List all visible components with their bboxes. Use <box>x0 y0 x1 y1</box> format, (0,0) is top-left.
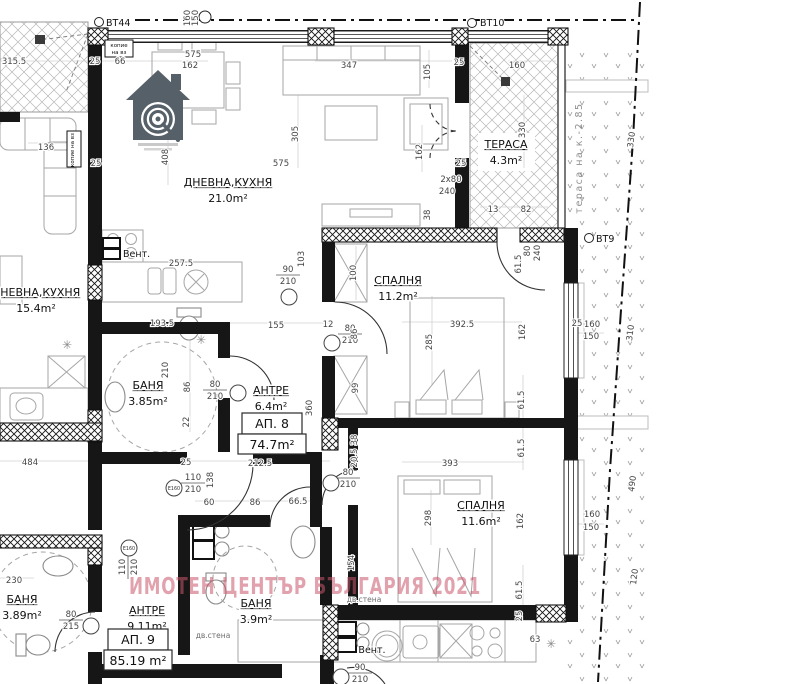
dimension-label: 25 <box>515 611 525 622</box>
dimension-label: 99 <box>351 383 361 394</box>
door-height: 210 <box>185 485 201 495</box>
room-label-hall-6-4: АНТРЕ6.4m² <box>253 384 289 413</box>
dimension-label: 61.5 <box>517 391 527 410</box>
dimension-label: 150 <box>583 523 599 533</box>
dimension-label: 155 <box>268 321 284 331</box>
dimension-label: 240 <box>439 187 455 197</box>
dimension-label: 310 <box>625 324 637 341</box>
door-height: 210 <box>340 480 356 490</box>
door-width: 90 <box>355 663 366 673</box>
door-width: 90 <box>283 265 294 275</box>
dimension-label: 20.5 <box>350 449 360 468</box>
door-ref-code: E160 <box>168 486 180 492</box>
apartment-number: АП. 8 <box>255 416 289 431</box>
door-width: 80 <box>343 468 354 478</box>
dimension-label: 162 <box>182 61 198 71</box>
dimension-label: 66.5 <box>289 497 308 507</box>
apartment-area: 85.19 m² <box>110 653 167 668</box>
dimension-label: 63 <box>530 635 541 645</box>
dimension-label: 160 <box>509 61 525 71</box>
armchair <box>404 98 448 150</box>
door-ref-circle <box>324 335 340 351</box>
lamp-icon: ✳ <box>546 637 556 651</box>
dimension-label: 240 <box>533 245 543 261</box>
room-labels: ДНЕВНА,КУХНЯ21.0m²ТЕРАСА4.3m²ДНЕВНА,КУХН… <box>0 138 528 633</box>
dimension-label: 408 <box>161 149 171 165</box>
room-label-bedroom-11-2: СПАЛНЯ11.2m² <box>374 274 422 303</box>
dimension-label: 490 <box>627 475 639 492</box>
annotation-label: тераса на к.-2.85 <box>574 102 585 213</box>
bt44-marker <box>95 18 104 27</box>
room-name: БАНЯ <box>7 593 38 606</box>
dimension-label: 150 <box>583 332 599 342</box>
room-label-bath-3-89: БАНЯ3.89m² <box>2 593 42 622</box>
room-area: 11.6m² <box>461 515 501 528</box>
dimension-label: 575 <box>185 50 201 60</box>
dimension-label: 80 <box>523 246 533 257</box>
dimension-label: 25 <box>572 319 583 329</box>
door-height: 210 <box>130 559 140 575</box>
door-ref-circle <box>83 618 99 634</box>
door-width: 80 <box>210 380 221 390</box>
apartment-area: 74.7m² <box>249 437 294 452</box>
room-name: БАНЯ <box>133 379 164 392</box>
terrace-parapet <box>558 30 565 228</box>
room-name: АНТРЕ <box>253 384 289 397</box>
room-area: 3.9m² <box>240 613 273 626</box>
room-name: ТЕРАСА <box>483 138 528 151</box>
dimension-label: 160 <box>584 320 600 330</box>
dimension-label: 305 <box>291 126 301 142</box>
apartment-number: АП. 9 <box>121 632 155 647</box>
furniture <box>0 36 536 662</box>
dimension-label: 484 <box>22 458 38 468</box>
dimension-label: 61.5 <box>517 439 527 458</box>
door-ref-circle <box>323 475 339 491</box>
annotation-label: копие на вз <box>70 133 76 167</box>
dimension-label: 66 <box>115 57 126 67</box>
room-area: 3.89m² <box>2 609 42 622</box>
vent-shaft <box>103 238 120 248</box>
dimension-label: 25 <box>90 57 101 67</box>
dimension-label: 330 <box>626 131 638 148</box>
dimension-label: 285 <box>425 334 435 350</box>
room-area: 21.0m² <box>208 192 248 205</box>
bt9-marker <box>585 234 594 243</box>
room-label-living-15-4: ДНЕВНА,КУХНЯ15.4m² <box>0 286 80 315</box>
dimension-label: 25 <box>454 58 465 68</box>
room-name: СПАЛНЯ <box>374 274 422 287</box>
door-ref-circle <box>230 385 246 401</box>
door-width: 110 <box>118 559 128 575</box>
dimension-label: 257.5 <box>169 259 193 269</box>
dimension-label: 392.5 <box>450 320 474 330</box>
door-height: 210 <box>207 392 223 402</box>
agency-logo <box>126 70 190 151</box>
annotation-label: ВТ10 <box>480 18 504 29</box>
door-height: 215 <box>63 622 79 632</box>
ground-ledge <box>575 416 648 429</box>
dimension-label: 105 <box>423 64 433 80</box>
dimension-label: 575 <box>273 159 289 169</box>
dimension-label: 136 <box>38 143 54 153</box>
door-size-marker: 80210 <box>336 468 360 490</box>
door-size-marker: 90210 <box>348 663 372 684</box>
room-label-bedroom-11-6: СПАЛНЯ11.6m² <box>457 499 505 528</box>
dimension-label: 25 <box>91 159 102 169</box>
bath-sink <box>43 556 73 576</box>
dimension-label: 162 <box>516 513 526 529</box>
door-width: 110 <box>185 473 201 483</box>
dimension-label: 298 <box>424 510 434 526</box>
lamp-icon: ✳ <box>196 333 206 347</box>
dimension-label: 193.5 <box>150 319 174 329</box>
door-ref-circle <box>333 669 349 684</box>
bt10-marker <box>468 19 477 28</box>
dimension-label: 162 <box>415 144 425 160</box>
annotation-label: Вент. <box>358 645 385 656</box>
door-size-marker: 110210 <box>181 473 205 495</box>
dimension-label: 120 <box>629 568 641 585</box>
dimension-label: 347 <box>341 61 357 71</box>
dimension-label: 393 <box>442 459 458 469</box>
annotation-label: копие <box>110 43 128 49</box>
dimension-label: 154 <box>347 555 357 571</box>
dimension-label: 13 <box>488 205 499 215</box>
dimension-label: 25 <box>456 159 467 169</box>
dimension-label: 162 <box>518 324 528 340</box>
room-name: ДНЕВНА,КУХНЯ <box>184 176 273 189</box>
dimension-label: 22 <box>182 417 192 428</box>
annotation-label: на вз <box>112 50 127 56</box>
coffee-table <box>325 106 377 140</box>
dimension-label: 60 <box>204 498 215 508</box>
dimension-label: 100 <box>349 265 359 281</box>
floor-plan-viewer: ДНЕВНА,КУХНЯ21.0m²ТЕРАСА4.3m²ДНЕВНА,КУХН… <box>0 0 800 684</box>
dimension-label: 25 <box>181 458 192 468</box>
door-size-marker: 80215 <box>59 610 83 632</box>
room-area: 4.3m² <box>490 154 523 167</box>
dimension-label: 160 <box>584 510 600 520</box>
dimension-label: 12 <box>323 320 334 330</box>
watermark-text: ИМОТЕН ЦЕНТЪР БЪЛГАРИЯ 2021 <box>129 574 481 600</box>
door-width: 80 <box>66 610 77 620</box>
bath-sink <box>291 526 315 558</box>
dimension-label: 86 <box>250 498 261 508</box>
dimension-label: 360 <box>305 400 315 416</box>
dimension-label: 86 <box>350 329 360 340</box>
annotation-label: ВТ9 <box>596 234 614 245</box>
kitchen-counter <box>238 620 536 662</box>
room-label-bath-3-85: БАНЯ3.85m² <box>128 379 168 408</box>
door-ref-code: E160 <box>123 546 135 552</box>
room-area: 15.4m² <box>16 302 56 315</box>
room-label-bath-3-9: БАНЯ3.9m² <box>240 597 273 626</box>
dimension-label: 150 <box>191 10 201 26</box>
door-height: 210 <box>352 675 368 684</box>
annotation-label: ВТ44 <box>106 18 130 29</box>
dimension-label: 38 <box>423 210 433 221</box>
dimension-label: 210 <box>161 362 171 378</box>
dimension-label: 2x80 <box>440 175 461 185</box>
room-name: СПАЛНЯ <box>457 499 505 512</box>
dimension-label: 103 <box>297 251 307 267</box>
annotation-label: Вент. <box>123 249 150 260</box>
vent-shaft <box>337 622 356 636</box>
apartment-label: АП. 985.19 m² <box>104 629 172 670</box>
door-ref-circle <box>281 289 297 305</box>
dimension-label: 82 <box>521 205 532 215</box>
tv-stand <box>322 204 420 226</box>
dimension-label: 230 <box>6 576 22 586</box>
bath-sink <box>105 382 125 412</box>
dimension-label: 138 <box>206 472 216 488</box>
room-label-living-21: ДНЕВНА,КУХНЯ21.0m² <box>184 176 273 205</box>
dimension-label: 61.5 <box>515 581 525 600</box>
dimension-label: 86 <box>183 382 193 393</box>
room-area: 3.85m² <box>128 395 168 408</box>
room-area: 6.4m² <box>255 400 288 413</box>
annotation-label: дв.стена <box>196 631 231 640</box>
room-name: АНТРЕ <box>129 604 165 617</box>
room-name: ДНЕВНА,КУХНЯ <box>0 286 80 299</box>
door-size-marker: 90210 <box>276 265 300 287</box>
apartment-label: АП. 874.7m² <box>238 413 306 454</box>
dimension-label: 330 <box>518 122 528 138</box>
lamp-icon: ✳ <box>62 338 72 352</box>
dimension-label: 212.5 <box>248 459 272 469</box>
toilet <box>16 634 26 656</box>
door-height: 210 <box>280 277 296 287</box>
room-area: 11.2m² <box>378 290 418 303</box>
floor-plan: ДНЕВНА,КУХНЯ21.0m²ТЕРАСА4.3m²ДНЕВНА,КУХН… <box>0 0 800 684</box>
dimension-label: 315.5 <box>2 57 26 67</box>
dimension-label: 38 <box>350 435 360 446</box>
